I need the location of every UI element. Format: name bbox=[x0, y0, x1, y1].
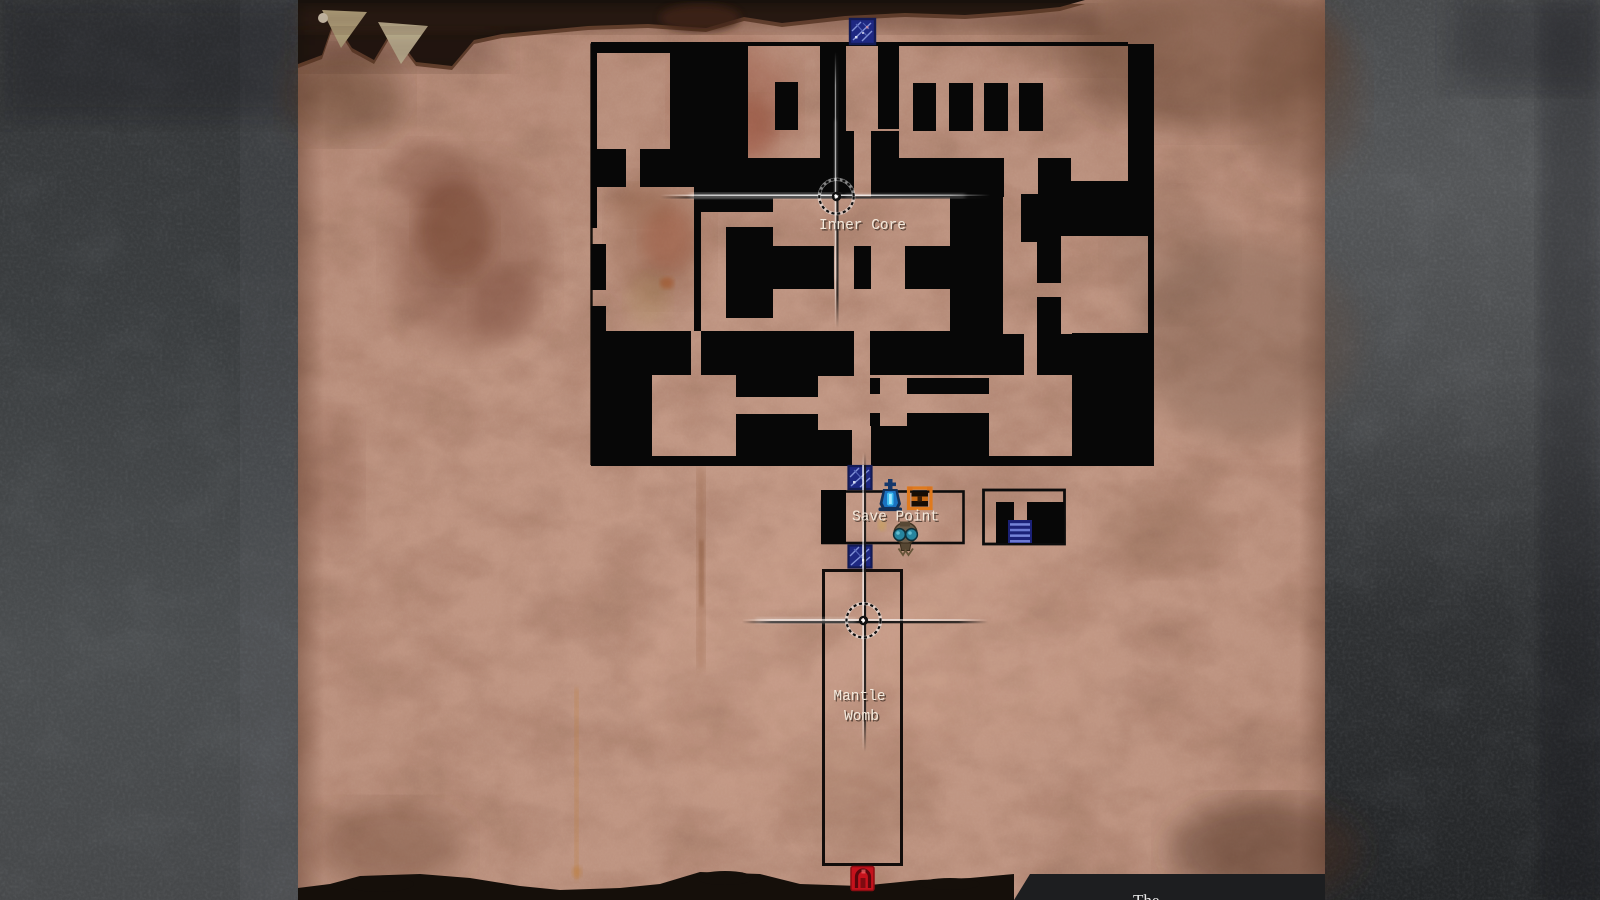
svg-text:The: The bbox=[1133, 891, 1159, 900]
svg-text:Inner Core: Inner Core bbox=[819, 218, 906, 234]
svg-text:Womb: Womb bbox=[844, 709, 879, 725]
svg-text:Save Point: Save Point bbox=[852, 510, 939, 526]
svg-text:Mantle: Mantle bbox=[833, 689, 885, 705]
